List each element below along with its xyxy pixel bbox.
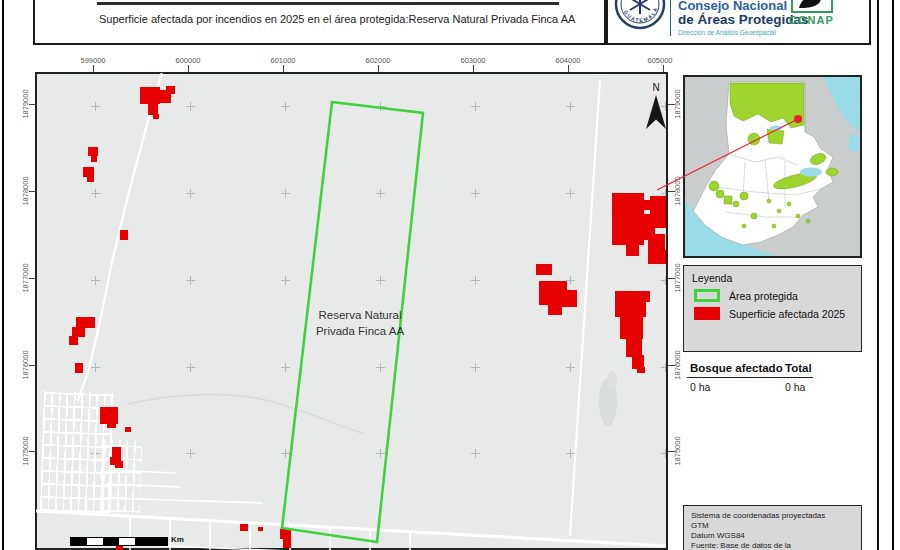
coordinate-system-panel: Sistema de coordenadas proyectadas GTM D… [683,505,862,550]
grid-cross-icon [471,449,480,458]
legend-panel: Leyenda Área protegida Superficie afecta… [683,265,862,352]
grid-cross-icon [186,189,195,198]
grid-cross-icon [91,276,100,285]
footer-line: Fuente: Base de datos de la [691,541,861,550]
town-street-grid-small [102,439,142,512]
grid-cross-icon [376,276,385,285]
grid-cross-icon [91,102,100,111]
affected-forest-table: Bosque afectado Total 0 ha 0 ha [683,358,862,393]
stats-col2-value: 0 ha [785,381,805,393]
footer-line: GTM [691,521,861,531]
grid-cross-icon [281,449,290,458]
guatemala-seal-icon: GUATEMALA [614,0,666,36]
x-tick-label: 604000 [555,56,580,65]
x-tick-label: 602000 [365,56,390,65]
x-tick-label: 601000 [270,56,295,65]
grid-cross-icon [376,449,385,458]
grid-cross-icon [281,189,290,198]
grid-cross-icon [566,363,575,372]
grid-cross-icon [186,276,195,285]
grid-cross-icon [471,276,480,285]
grid-cross-icon [186,102,195,111]
grid-cross-icon [566,449,575,458]
logo-panel: GUATEMALA Consejo Nacional de Áreas Prot… [606,0,871,45]
footer-line: Datum WGS84 [691,531,861,541]
grid-cross-icon [281,363,290,372]
grid-cross-icon [471,189,480,198]
grid-cross-icon [376,363,385,372]
x-tick-label: 605000 [647,56,672,65]
grid-cross-icon [186,449,195,458]
legend-title: Leyenda [692,272,861,284]
stats-col2-header: Total [785,362,812,374]
x-tick-label: 599000 [80,56,105,65]
x-tick-label: 603000 [460,56,485,65]
page-inner-rule [877,0,879,550]
cut-off-title-text [97,2,559,5]
north-label: N [646,82,666,93]
grid-cross-icon [661,189,669,198]
stats-col1-value: 0 ha [690,381,785,393]
grid-cross-icon [661,102,669,111]
grid-cross-icon [376,102,385,111]
grid-cross-icon [376,189,385,198]
legend-item-affected-area: Superficie afectada 2025 [694,307,861,320]
map-subtitle: Superficie afectada por incendios en 202… [99,13,589,25]
title-panel: Superficie afectada por incendios en 202… [33,0,606,45]
grid-cross-icon [91,189,100,198]
guatemala-inset-graphic [685,77,860,256]
conap-bird-icon [791,0,833,13]
grid-cross-icon [661,449,669,458]
conap-label: CONAP [789,14,837,26]
grid-cross-icon [281,102,290,111]
x-tick-label: 600000 [175,56,200,65]
map-layout-page: Reserva Natural Privada Finca AA N Km 59… [0,0,900,550]
legend-item-protected-area: Área protegida [694,289,861,302]
grid-cross-icon [566,102,575,111]
grid-cross-icon [186,363,195,372]
grid-cross-icon [91,363,100,372]
org-subname: Dirección de Análisis Geoespacial [678,29,776,36]
stats-col1-header: Bosque afectado [690,362,785,374]
grid-cross-icon [471,363,480,372]
logo-divider [670,0,671,36]
grid-cross-icon [661,363,669,372]
grid-cross-icon [566,189,575,198]
footer-line: Sistema de coordenadas proyectadas [691,511,861,521]
scale-bar [70,537,168,546]
scale-unit-label: Km [171,535,184,544]
grid-cross-icon [661,276,669,285]
affected-area-swatch-icon [694,307,720,320]
inset-map [683,75,862,258]
grid-cross-icon [281,276,290,285]
grid-cross-icon [566,276,575,285]
protected-area-label: Reserva Natural Privada Finca AA [255,308,465,339]
protected-area-swatch-icon [694,289,720,302]
grid-cross-icon [471,102,480,111]
